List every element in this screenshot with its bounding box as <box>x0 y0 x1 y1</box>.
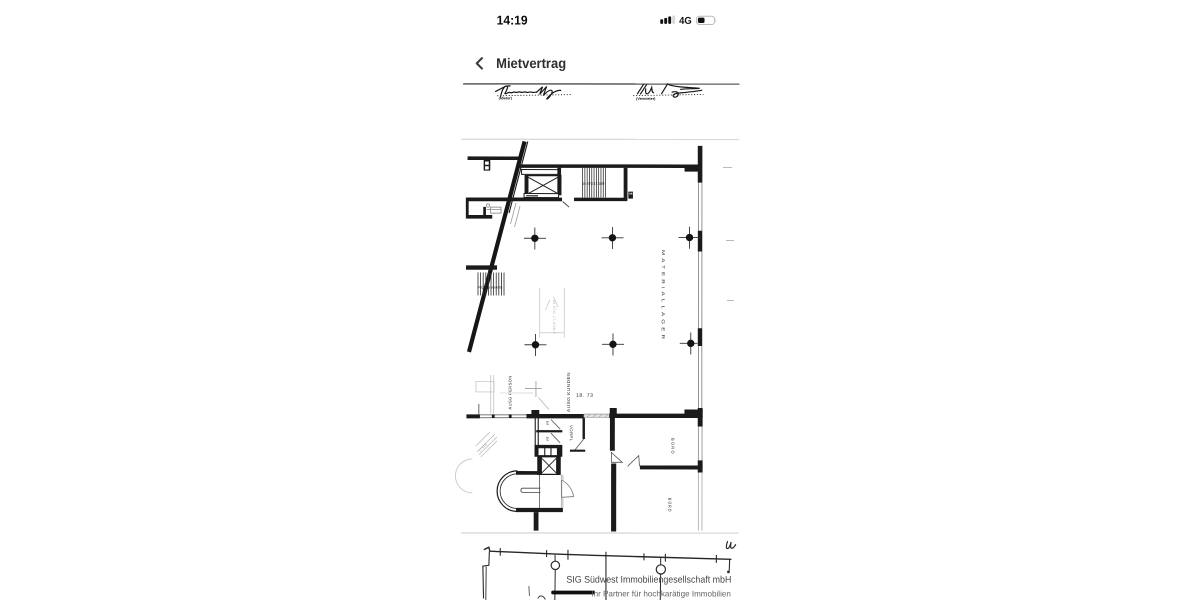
svg-text:SIG Südwest Immobiliengesellsc: SIG Südwest Immobiliengesellschaft mbH <box>566 575 731 586</box>
svg-text:18. 73: 18. 73 <box>576 393 593 399</box>
svg-text:VORPL: VORPL <box>569 425 574 442</box>
svg-text:BÜRO: BÜRO <box>670 438 675 455</box>
svg-text:4G: 4G <box>679 16 692 27</box>
svg-text:14:19: 14:19 <box>497 13 528 28</box>
svg-text:16 STG 17,5/28: 16 STG 17,5/28 <box>582 182 604 186</box>
svg-text:24 STG 17,2/28,5: 24 STG 17,2/28,5 <box>552 300 556 334</box>
svg-text:1M: 1M <box>545 437 549 442</box>
svg-text:1M: 1M <box>545 421 549 426</box>
svg-text:(Mieter): (Mieter) <box>499 96 513 100</box>
svg-text:Mietvertrag: Mietvertrag <box>496 55 566 71</box>
svg-text:Ihr Partner für hochkarätige I: Ihr Partner für hochkarätige Immobilien <box>591 589 731 598</box>
svg-text:MATERIALLAGER: MATERIALLAGER <box>661 250 666 342</box>
svg-text:NOTAUSGANG: NOTAUSGANG <box>479 285 503 289</box>
svg-text:AUSG KUNDEN: AUSG KUNDEN <box>566 372 571 412</box>
svg-text:BÜRO: BÜRO <box>667 498 672 513</box>
svg-text:(Vermieter): (Vermieter) <box>636 97 656 101</box>
svg-text:AUSG PERSON: AUSG PERSON <box>507 375 512 409</box>
